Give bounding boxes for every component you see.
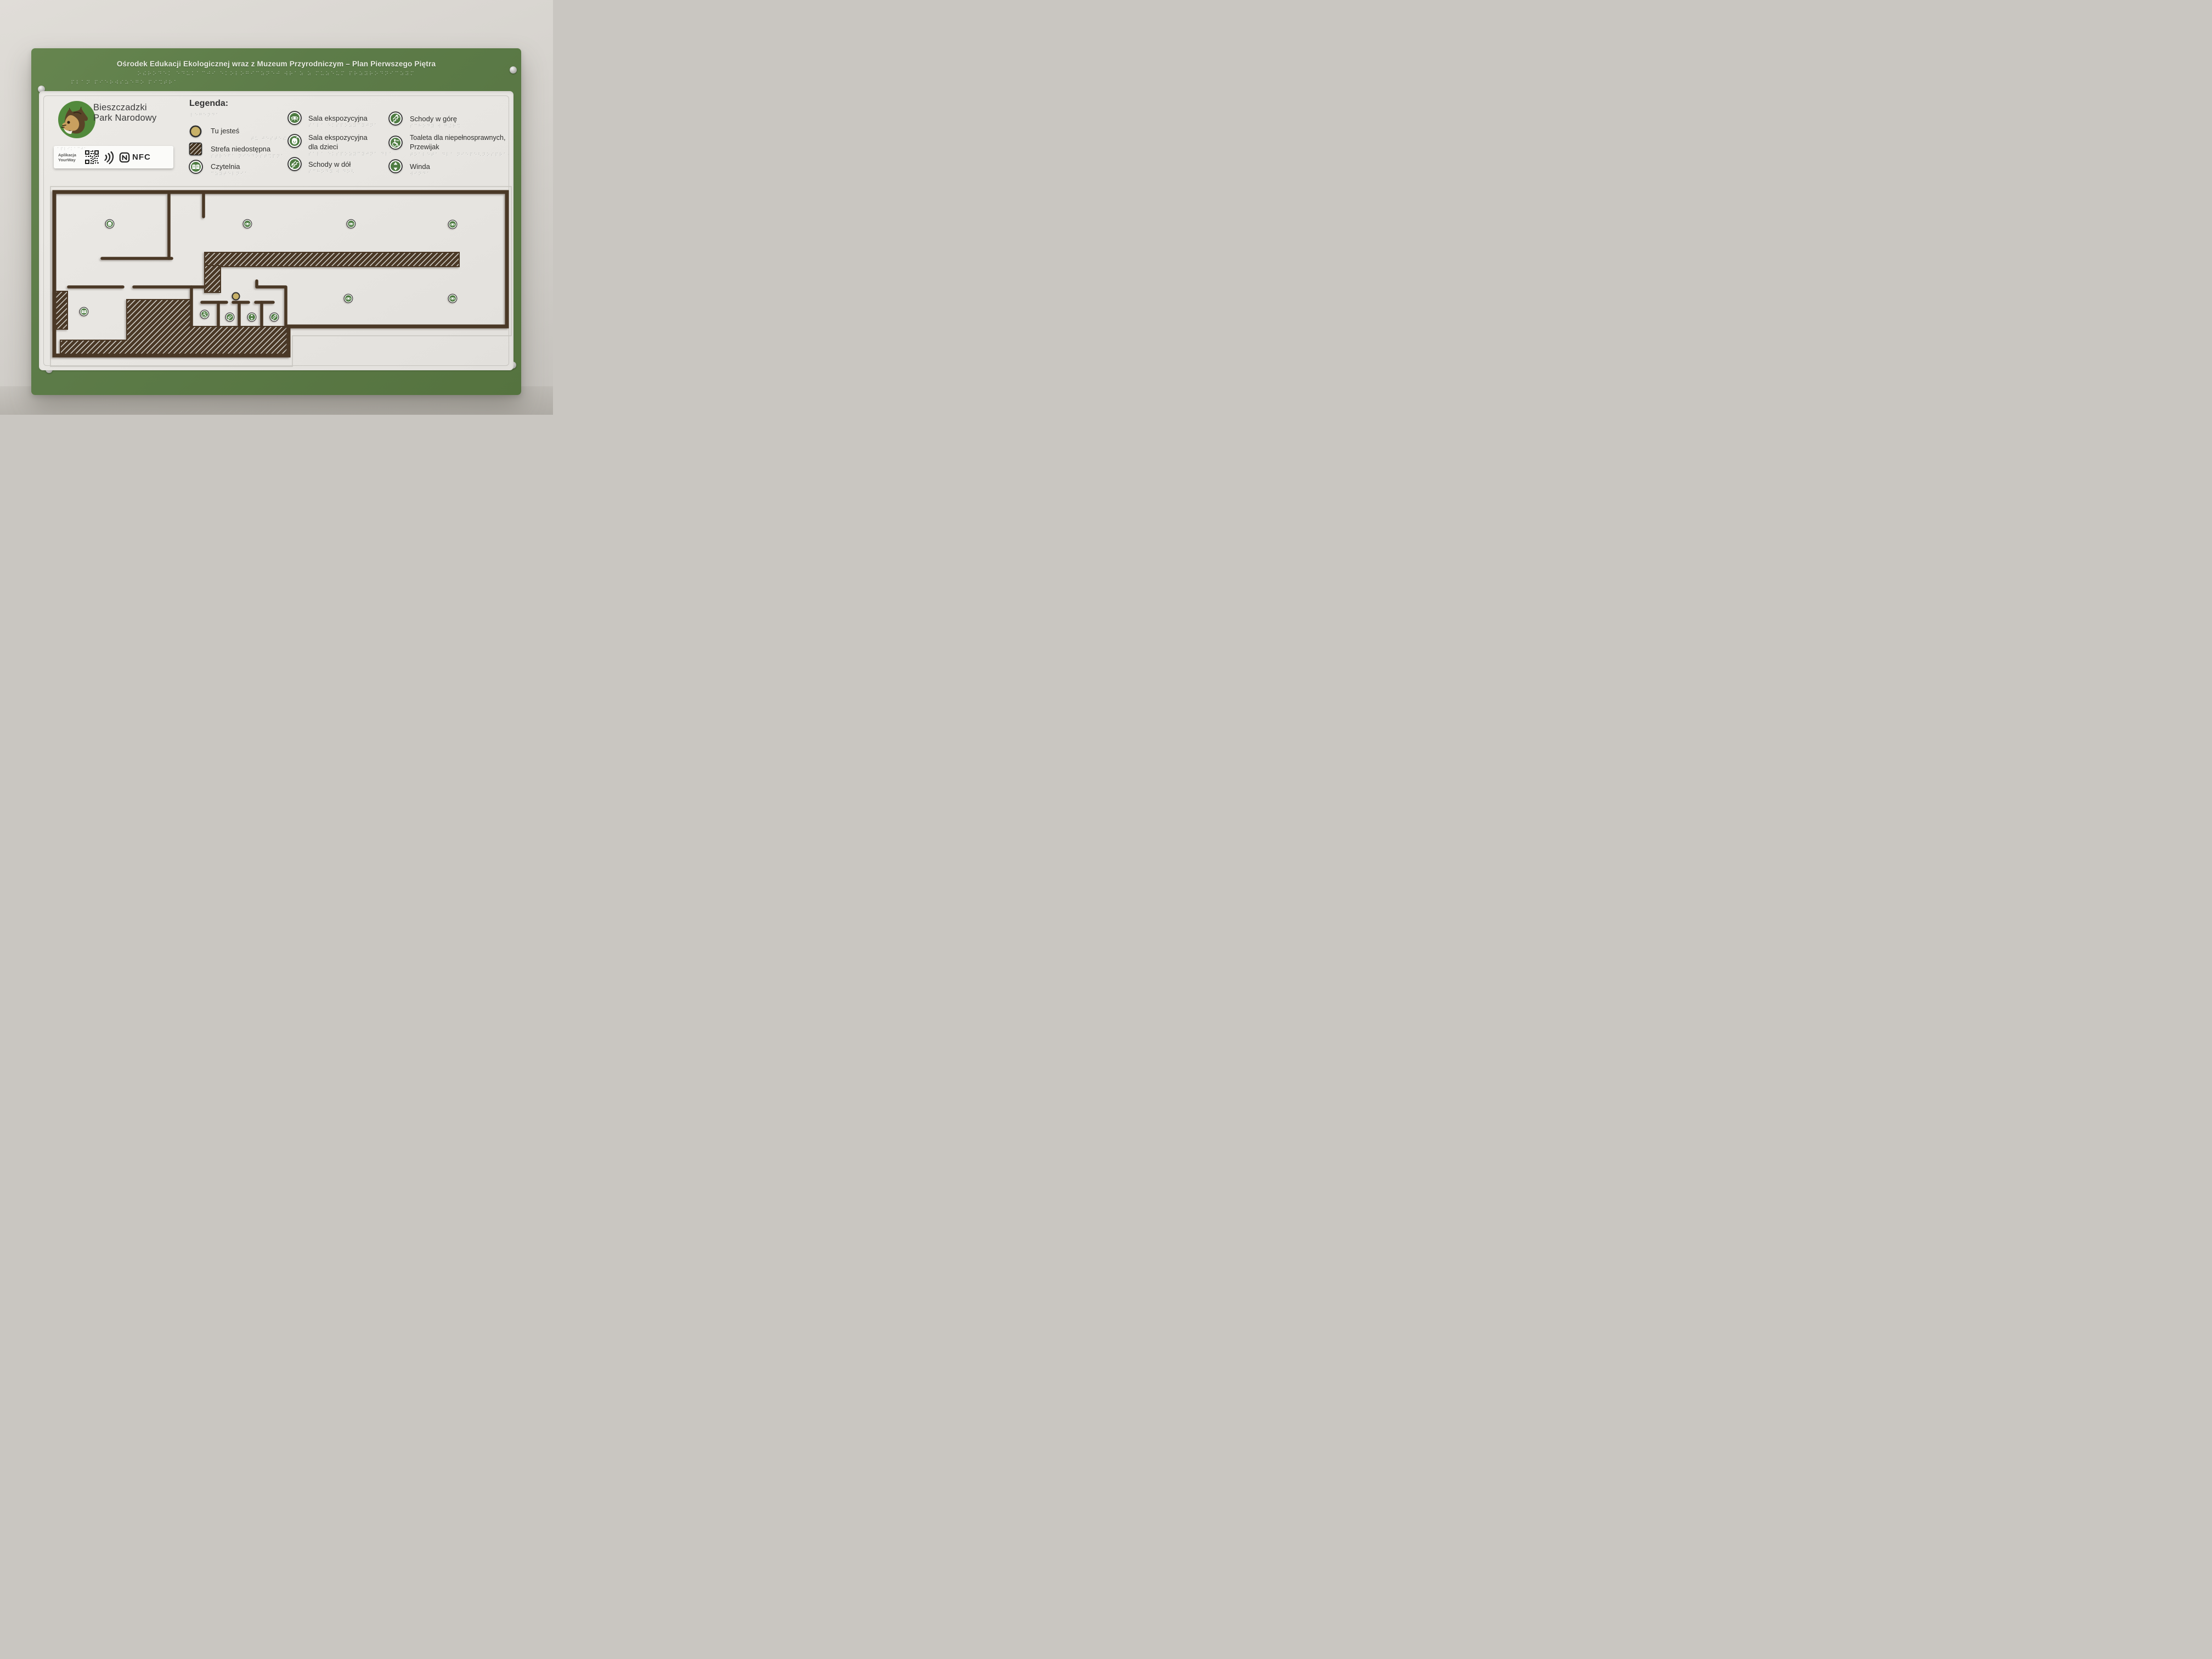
- page-title: Ośrodek Edukacji Ekologicznej wraz z Muz…: [31, 60, 521, 68]
- plan-marker-accessible-toilet: [200, 310, 209, 319]
- plan-marker-children-exhibition: [105, 219, 114, 228]
- restricted-zone-main: [60, 300, 289, 356]
- you-are-here-marker: [233, 293, 240, 300]
- plan-marker-exhibition: [448, 220, 457, 229]
- floor-plan: [39, 91, 513, 370]
- plan-marker-stairs-up: [270, 313, 279, 321]
- plan-marker-reading-room: [80, 307, 88, 316]
- photo-scene: Ośrodek Edukacji Ekologicznej wraz z Muz…: [0, 0, 553, 415]
- plan-marker-exhibition: [344, 294, 353, 303]
- sign-board: Ośrodek Edukacji Ekologicznej wraz z Muz…: [31, 48, 521, 395]
- plan-marker-stairs-down: [225, 313, 234, 321]
- restricted-zones: [54, 252, 459, 356]
- restricted-zone-bar: [205, 252, 459, 267]
- plan-marker-exhibition: [243, 219, 252, 228]
- braille-title-row1: ⠕⠮⠗⠕⠙⠑⠅ ⠑⠙⠥⠅⠁⠉⠚⠊ ⠑⠅⠕⠇⠕⠛⠊⠉⠵⠝⠑⠚ ⠺⠗⠁⠵ ⠵ ⠍⠥⠵…: [31, 71, 521, 77]
- braille-title-row2: ⠏⠇⠁⠝ ⠏⠊⠑⠗⠺⠎⠵⠑⠛⠕ ⠏⠊⠩⠞⠗⠁: [71, 80, 179, 86]
- sign-panel: Bieszczadzki Park Narodowy ⠁⠏⠇⠊⠅⠁⠉⠚⠁ Apl…: [39, 91, 513, 370]
- plan-marker-exhibition: [448, 294, 457, 303]
- plan-marker-exhibition: [347, 219, 356, 228]
- restricted-zone-left: [54, 291, 67, 329]
- plan-marker-elevator: [247, 313, 256, 321]
- restricted-zone-hook: [205, 266, 221, 292]
